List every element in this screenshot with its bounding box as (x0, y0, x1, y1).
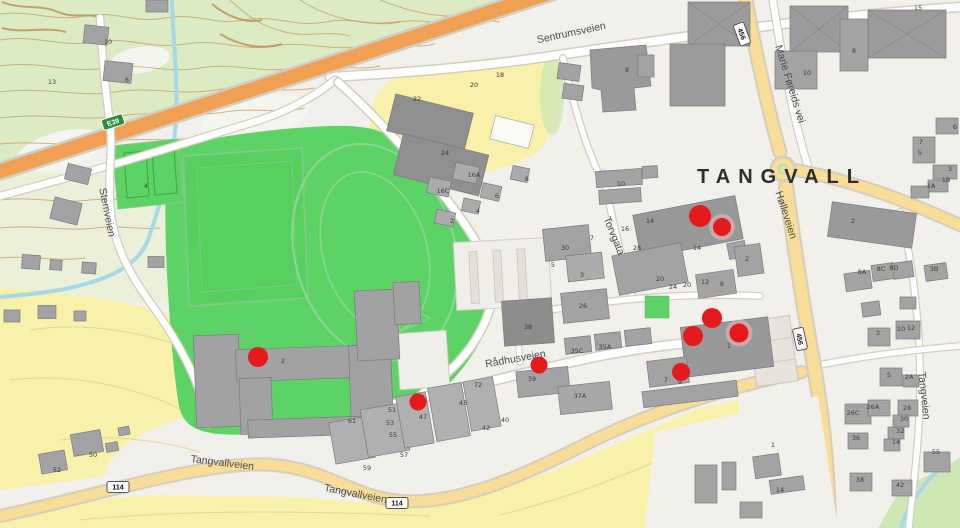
house-number: 1B (942, 176, 951, 184)
house-number: 38 (524, 323, 532, 331)
building (861, 301, 881, 317)
house-number: 42 (482, 424, 490, 432)
house-number: 36 (852, 434, 860, 442)
building (50, 260, 63, 271)
building (642, 165, 658, 178)
house-number: 26 (579, 302, 587, 310)
building (22, 254, 41, 269)
road-badge-114: 114 (107, 482, 129, 493)
building (913, 137, 935, 163)
house-number: 55 (932, 448, 940, 456)
house-number: 39 (528, 375, 536, 383)
house-number: 57 (400, 451, 408, 459)
map-marker (683, 326, 703, 346)
house-number: 26C (847, 409, 860, 417)
map-marker (410, 394, 427, 411)
house-number: 20 (683, 281, 691, 289)
house-number: 5 (551, 261, 555, 269)
house-number: 5 (918, 149, 922, 157)
building (146, 0, 168, 12)
house-number: 6 (125, 76, 129, 84)
tangvall-map: 1310642525022242018816A16C86423075326383… (0, 0, 960, 528)
building (753, 453, 782, 478)
building (82, 262, 97, 274)
house-number: 37A (574, 392, 587, 400)
building (695, 465, 717, 503)
house-number: 16C (437, 187, 450, 195)
green-square (645, 296, 669, 318)
house-number: 14 (892, 438, 900, 446)
house-number: 43 (459, 399, 467, 407)
house-number: 16A (468, 171, 481, 179)
house-number: 8 (720, 280, 724, 288)
building (624, 328, 652, 347)
house-number: 61 (348, 417, 356, 425)
house-number: 10 (617, 180, 625, 188)
map-marker (689, 205, 711, 227)
building (840, 19, 868, 71)
house-number: 10 (897, 325, 905, 333)
house-number: 50 (89, 451, 97, 459)
house-number: 42 (896, 481, 904, 489)
building (118, 426, 130, 436)
house-number: 8 (525, 175, 529, 183)
house-number: 22 (413, 95, 421, 103)
house-number: 2 (851, 217, 855, 225)
building (900, 297, 916, 309)
place-name-label: TANGVALL (697, 166, 867, 188)
house-number: 12 (701, 278, 709, 286)
house-number: 1 (771, 441, 775, 449)
house-number: 8D (889, 264, 898, 272)
svg-text:114: 114 (112, 485, 123, 492)
house-number: 4 (476, 207, 480, 215)
house-number: 47 (419, 413, 427, 421)
house-number: 53 (386, 419, 394, 427)
house-number: 38 (856, 476, 864, 484)
house-number: 51 (388, 406, 396, 414)
house-number: 8A (858, 268, 867, 276)
house-number: 24 (441, 149, 449, 157)
house-number: 1A (927, 182, 936, 190)
house-number: 16 (621, 225, 629, 233)
house-number: 3 (876, 329, 880, 337)
house-number: 3 (580, 271, 584, 279)
house-number: 2 (281, 357, 285, 365)
building (105, 442, 118, 453)
house-number: 15 (914, 4, 922, 12)
house-number: 18 (496, 71, 504, 79)
building (638, 55, 654, 77)
house-number: 14 (646, 217, 654, 225)
house-number: 2 (450, 217, 454, 225)
building (566, 252, 605, 282)
house-number: 55 (389, 431, 397, 439)
house-number: 20 (656, 275, 664, 283)
building (38, 306, 56, 319)
house-number: 40 (501, 416, 509, 424)
house-number: 5 (887, 371, 891, 379)
house-number: 6 (495, 192, 499, 200)
building (501, 298, 554, 346)
house-number: 52 (53, 466, 61, 474)
map-marker (713, 218, 731, 236)
house-number: 35C (571, 347, 584, 355)
house-number: 20 (470, 81, 478, 89)
building (4, 310, 20, 322)
building (74, 311, 86, 321)
house-number: 3 (948, 165, 952, 173)
house-number: 14 (693, 244, 701, 252)
map-marker (672, 363, 690, 381)
house-number: 30 (561, 244, 569, 252)
football-pitch (183, 148, 308, 306)
house-number: 13 (48, 78, 56, 86)
house-number: 8C (877, 265, 886, 273)
house-number: 28 (633, 244, 641, 252)
building (148, 257, 164, 268)
house-number: 59 (363, 464, 371, 472)
house-number: 7 (664, 376, 668, 384)
map-marker (248, 347, 268, 367)
road-badge-114: 114 (386, 498, 408, 509)
house-number: 72 (474, 381, 482, 389)
svg-text:114: 114 (391, 501, 402, 508)
house-number: 8 (852, 47, 856, 55)
house-number: 8 (625, 66, 629, 74)
house-number: 3B (930, 265, 939, 273)
house-number: 28 (903, 404, 911, 412)
building (562, 83, 584, 101)
house-number: 26A (867, 403, 880, 411)
house-number: 2A (905, 373, 914, 381)
house-number: 35A (599, 343, 612, 351)
building (722, 462, 736, 490)
house-number: 32 (896, 427, 904, 435)
house-number: 10 (803, 69, 811, 77)
house-number: 24 (669, 283, 677, 291)
building (557, 63, 581, 82)
map-canvas: 1310642525022242018816A16C86423075326383… (0, 0, 960, 528)
map-marker (702, 308, 722, 328)
map-marker (531, 357, 548, 374)
house-number: 6 (953, 123, 957, 131)
building (70, 430, 103, 457)
building (599, 188, 642, 205)
map-marker (730, 324, 749, 343)
house-number: 14 (776, 486, 784, 494)
house-number: 30 (900, 415, 908, 423)
house-number: 12 (907, 324, 915, 332)
house-number: 4 (144, 182, 148, 190)
house-number: 7 (590, 234, 594, 242)
house-number: 2 (745, 255, 749, 263)
house-number: 10 (104, 38, 112, 46)
house-number: 7 (919, 138, 923, 146)
building (740, 502, 762, 518)
